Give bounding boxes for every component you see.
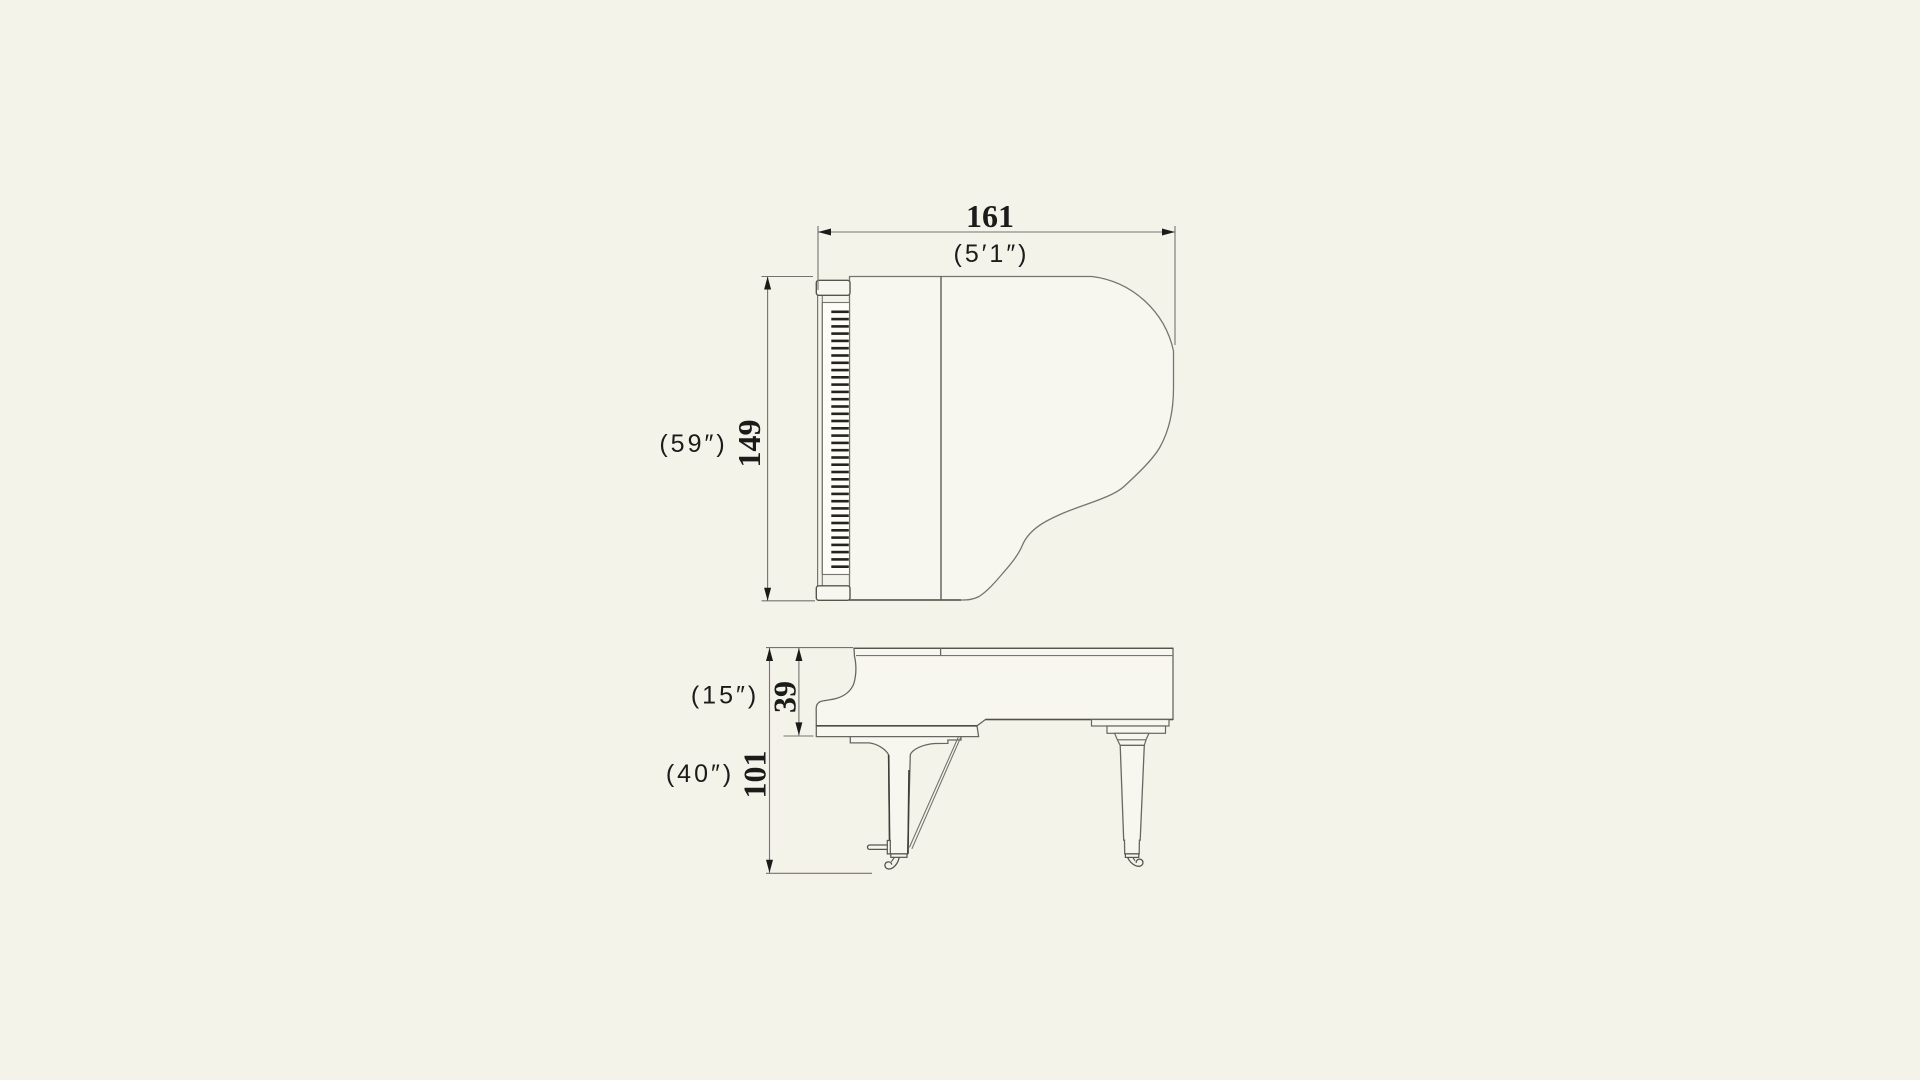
svg-text:39: 39 (767, 681, 803, 713)
svg-text:(40″): (40″) (666, 760, 734, 788)
svg-text:(15″): (15″) (691, 682, 759, 710)
svg-text:(5′1″): (5′1″) (954, 240, 1030, 268)
svg-text:149: 149 (731, 420, 767, 468)
svg-text:161: 161 (966, 198, 1014, 234)
svg-text:101: 101 (737, 751, 773, 799)
svg-text:(59″): (59″) (659, 430, 727, 458)
